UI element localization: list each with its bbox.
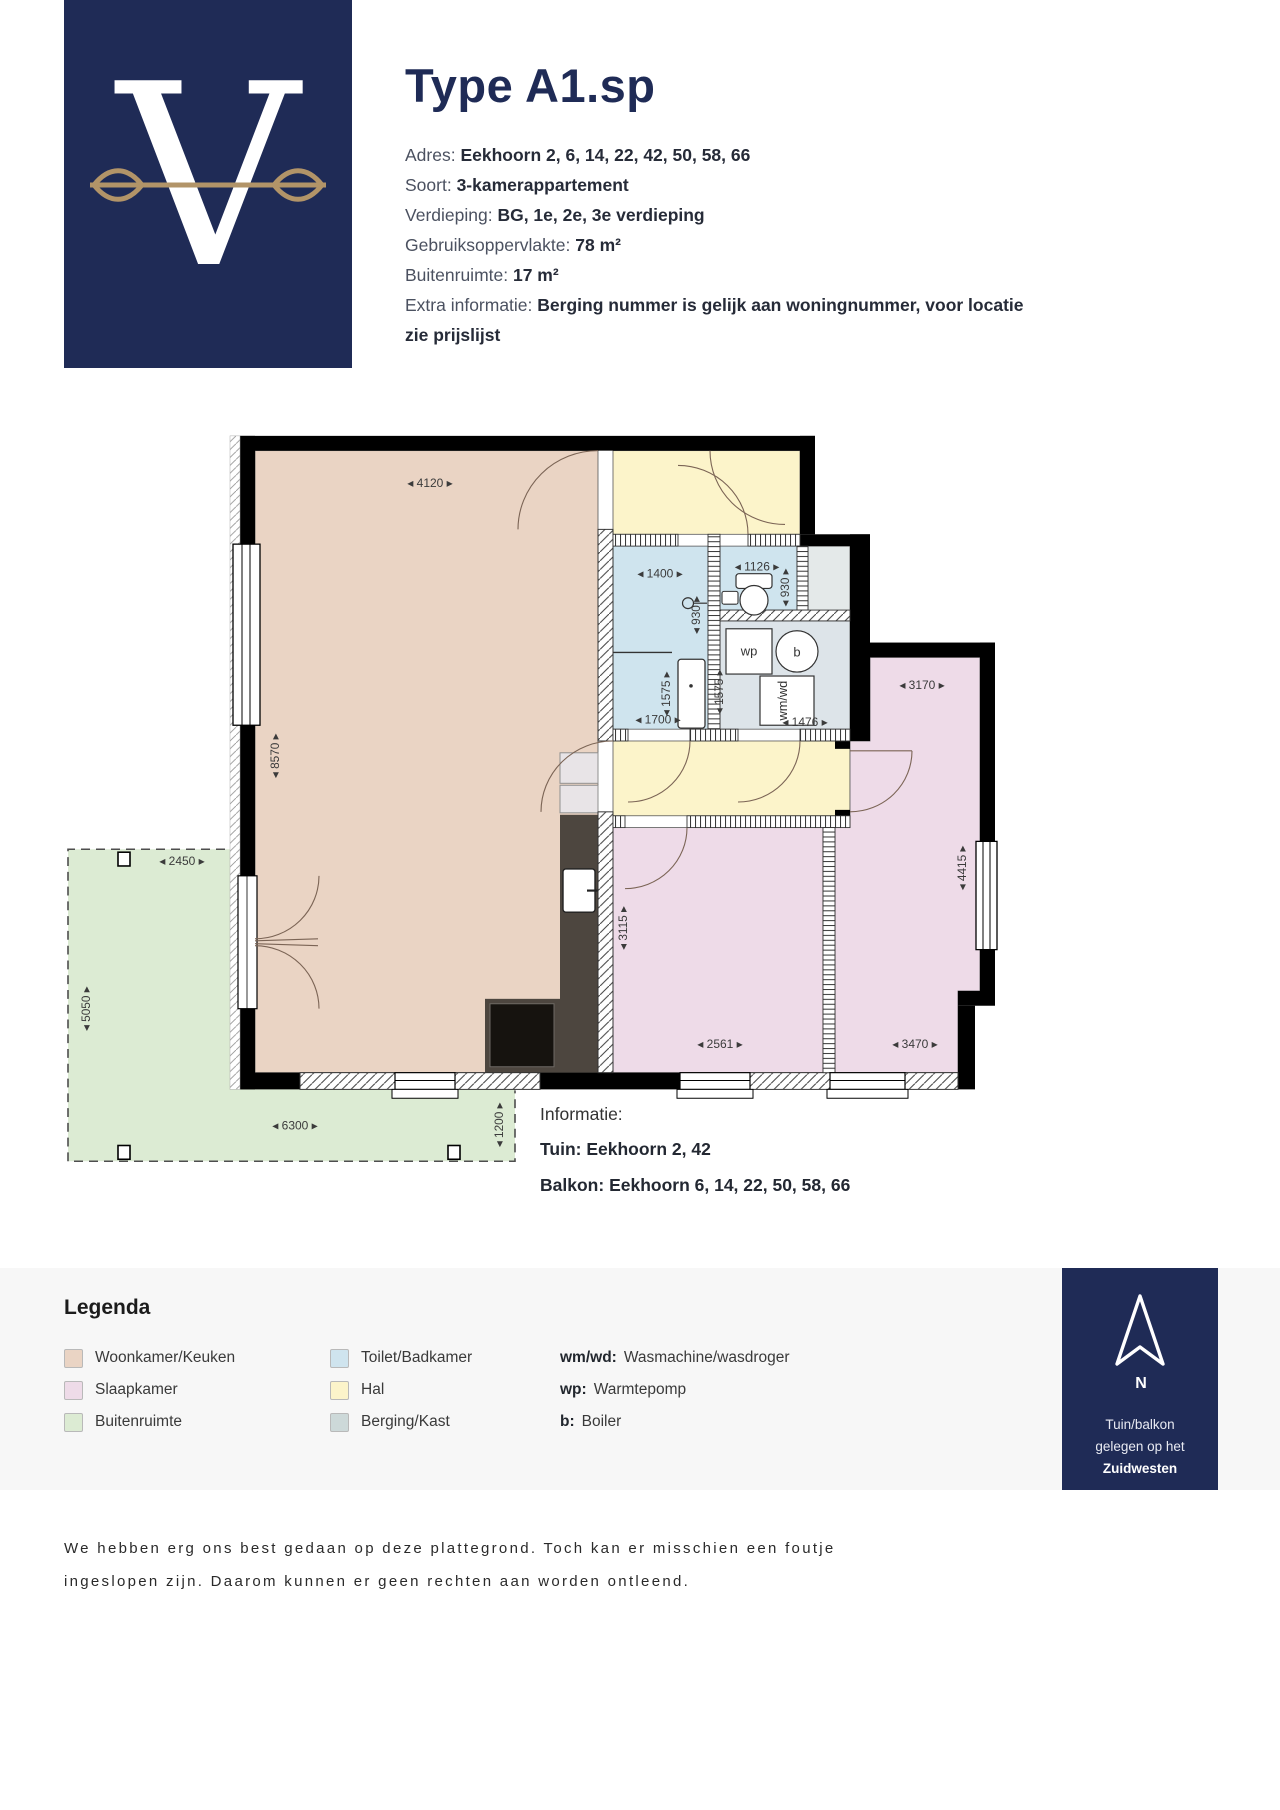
- compass-box: N Tuin/balkon gelegen op het Zuidwesten: [1062, 1268, 1218, 1490]
- dim-garden-strip: ◂ 1200 ▸: [492, 1102, 506, 1147]
- page-title: Type A1.sp: [405, 58, 656, 113]
- dim-living-w: ◂ 4120 ▸: [407, 476, 452, 490]
- disclaimer: We hebben erg ons best gedaan op deze pl…: [64, 1532, 1064, 1598]
- dim-bed2-bw: ◂ 3470 ▸: [892, 1037, 937, 1051]
- dim-bed1-w: ◂ 2561 ▸: [697, 1037, 742, 1051]
- dim-bath-w: ◂ 1400 ▸: [637, 567, 682, 581]
- field-oppervlakte: Gebruiksoppervlakte: 78 m²: [405, 230, 1045, 260]
- dim-garden-width: ◂ 2450 ▸: [159, 854, 204, 868]
- field-buitenruimte: Buitenruimte: 17 m²: [405, 260, 1045, 290]
- garden-post: [448, 1145, 460, 1159]
- floor-plan: ◂ 2450 ▸ ◂ 5050 ▸ ◂ 6300 ▸ ◂ 1200 ▸: [60, 428, 1050, 1176]
- swatch-toilet: [330, 1349, 349, 1368]
- field-verdieping: Verdieping: BG, 1e, 2e, 3e verdieping: [405, 200, 1045, 230]
- dim-living-h: ◂ 8570 ▸: [268, 733, 282, 778]
- room-hall-top: [613, 451, 800, 535]
- compass-text: Tuin/balkon gelegen op het Zuidwesten: [1062, 1414, 1218, 1480]
- field-extra: Extra informatie: Berging nummer is geli…: [405, 290, 1045, 350]
- compass-north-label: N: [1135, 1375, 1147, 1392]
- kitchen-cabinet: [560, 753, 598, 784]
- info-tuin: Tuin: Eekhoorn 2, 42: [540, 1139, 960, 1160]
- disclaimer-line-2: ingeslopen zijn. Daarom kunnen er geen r…: [64, 1565, 1064, 1598]
- swatch-slaapkamer: [64, 1381, 83, 1400]
- floor-plan-drawing: ◂ 2450 ▸ ◂ 5050 ▸ ◂ 6300 ▸ ◂ 1200 ▸: [60, 428, 1050, 1176]
- field-soort: Soort: 3-kamerappartement: [405, 170, 1045, 200]
- window-left: [233, 544, 260, 725]
- kitchen-counter: [560, 815, 598, 1073]
- stove: [490, 1004, 554, 1067]
- legend-item-berging: Berging/Kast: [330, 1412, 472, 1432]
- legend-item-buitenruimte: Buitenruimte: [64, 1412, 235, 1432]
- room-bedroom-1: [613, 828, 823, 1073]
- legend-abbr-wp: wp:Warmtepomp: [560, 1380, 790, 1400]
- legend-title: Legenda: [64, 1296, 150, 1320]
- room-hall-center: [613, 741, 850, 816]
- dim-garden-height: ◂ 5050 ▸: [79, 986, 93, 1031]
- legend-abbr-wmwd: wm/wd:Wasmachine/wasdroger: [560, 1348, 790, 1368]
- legend-column-1: Woonkamer/Keuken Slaapkamer Buitenruimte: [64, 1348, 235, 1432]
- window-bottom-bedroom2: [827, 1073, 908, 1099]
- logo-arrow-icon: [64, 0, 352, 368]
- kitchen-cabinet: [560, 785, 598, 813]
- legend-item-toilet: Toilet/Badkamer: [330, 1348, 472, 1368]
- swatch-buitenruimte: [64, 1413, 83, 1432]
- toilet-basin: [722, 591, 738, 604]
- dim-bath-d: ◂ 930 ▸: [689, 596, 703, 634]
- legend-item-hal: Hal: [330, 1380, 472, 1400]
- field-adres: Adres: Eekhoorn 2, 6, 14, 22, 42, 50, 58…: [405, 140, 1045, 170]
- washbasin: [678, 659, 705, 728]
- spec-fields: Adres: Eekhoorn 2, 6, 14, 22, 42, 50, 58…: [405, 140, 1045, 350]
- wall-hatched: [598, 529, 613, 741]
- info-balkon: Balkon: Eekhoorn 6, 14, 22, 50, 58, 66: [540, 1175, 960, 1196]
- dim-bath-inner: ◂ 1575 ▸: [659, 671, 673, 716]
- dim-bed2-w: ◂ 3170 ▸: [899, 678, 944, 692]
- dim-bed1-h: ◂ 3115 ▸: [616, 906, 630, 950]
- legend-item-slaapkamer: Slaapkamer: [64, 1380, 235, 1400]
- dim-bath-l: ◂ 1700 ▸: [635, 712, 680, 726]
- swatch-berging: [330, 1413, 349, 1432]
- compass-north-icon: N: [1100, 1286, 1180, 1406]
- toilet-bowl: [740, 585, 768, 615]
- window-bottom-living: [392, 1073, 458, 1099]
- dim-garden-bottom: ◂ 6300 ▸: [272, 1119, 317, 1133]
- disclaimer-line-1: We hebben erg ons best gedaan op deze pl…: [64, 1532, 1064, 1565]
- info-title: Informatie:: [540, 1104, 960, 1125]
- window-bottom-bedroom1: [677, 1073, 753, 1099]
- garden-post: [118, 1145, 130, 1159]
- dim-tech-d: ◂ 1575 ▸: [712, 669, 726, 714]
- brand-logo: V: [64, 0, 352, 368]
- info-block: Informatie: Tuin: Eekhoorn 2, 42 Balkon:…: [540, 1104, 960, 1211]
- dim-toilet-d: ◂ 930 ▸: [778, 568, 792, 606]
- garden-post: [118, 852, 130, 866]
- room-living: [255, 451, 598, 1073]
- boiler-label: b: [793, 644, 800, 659]
- swatch-woonkamer: [64, 1349, 83, 1368]
- window-right: [976, 841, 997, 949]
- legend-column-2: Toilet/Badkamer Hal Berging/Kast: [330, 1348, 472, 1432]
- swatch-hal: [330, 1381, 349, 1400]
- dim-bed2-h: ◂ 4415 ▸: [955, 846, 969, 891]
- dim-toilet-w: ◂ 1126 ▸: [735, 560, 779, 574]
- legend-column-3: wm/wd:Wasmachine/wasdroger wp:Warmtepomp…: [560, 1348, 790, 1432]
- heat-pump-label: wp: [740, 643, 758, 658]
- wall-hatched: [598, 812, 613, 1073]
- legend-item-woonkamer: Woonkamer/Keuken: [64, 1348, 235, 1368]
- legend-abbr-b: b:Boiler: [560, 1412, 790, 1432]
- dim-tech-w: ◂ 1476 ▸: [782, 715, 827, 729]
